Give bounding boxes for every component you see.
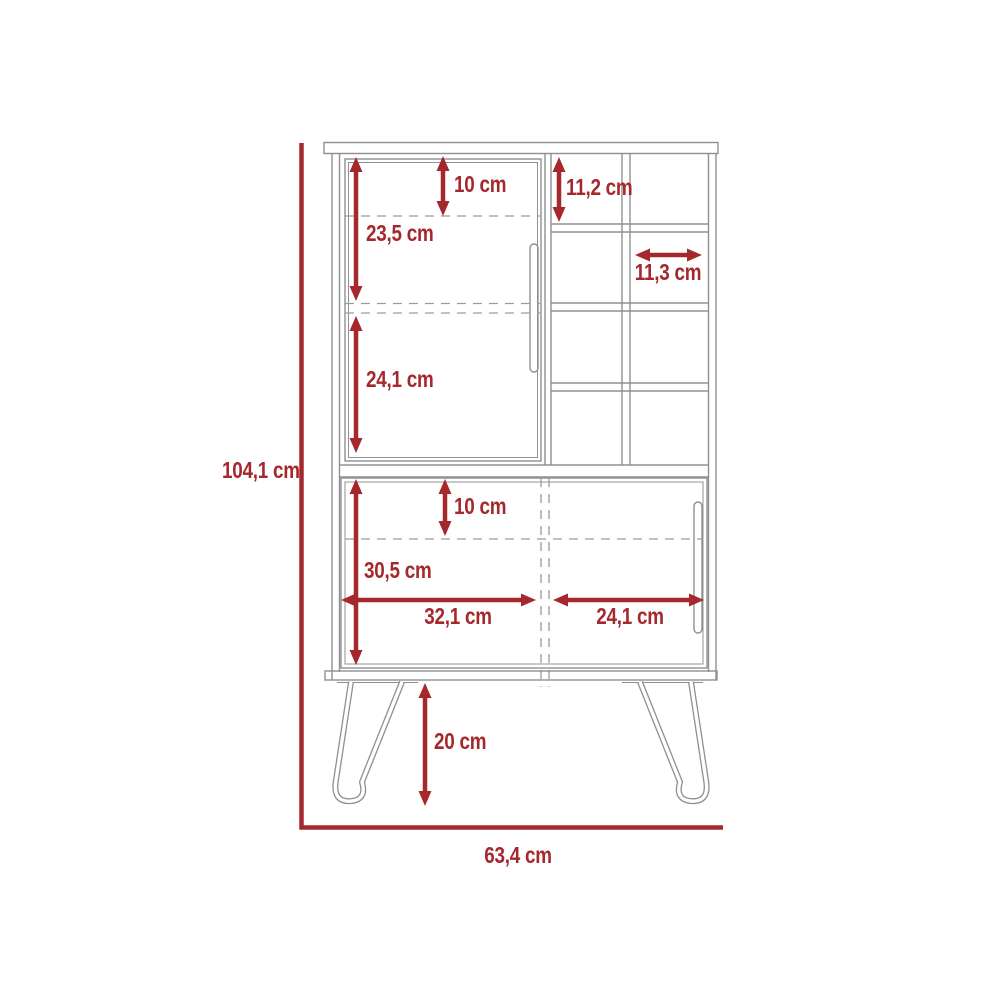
upper-door-handle (530, 244, 538, 372)
dim-label-overall-height: 104,1 cm (222, 459, 317, 482)
dim-label-lower-height: 30,5 cm (364, 559, 446, 582)
dim-arrow-cubby-height (553, 157, 566, 222)
cubby-grid (551, 154, 709, 466)
dim-label-upper-shelf-first: 23,5 cm (366, 222, 448, 245)
dim-arrow-upper-shelf-second (350, 316, 363, 453)
dimension-diagram: 104,1 cm 63,4 cm 10 cm 23,5 cm 24,1 cm 1… (0, 0, 1000, 1000)
dim-arrow-upper-top-offset (437, 156, 450, 216)
dim-arrow-lower-top-offset (439, 479, 452, 536)
dim-label-lower-top-offset: 10 cm (454, 495, 518, 518)
dim-label-leg-height: 20 cm (434, 730, 498, 753)
dim-label-upper-top-offset: 10 cm (454, 173, 518, 196)
dim-label-lower-left-width: 32,1 cm (417, 605, 499, 628)
hairpin-leg-right (640, 682, 707, 801)
lower-door-handle (694, 502, 702, 633)
cabinet-base-board (325, 671, 717, 680)
dim-label-overall-width: 63,4 cm (477, 844, 559, 867)
dim-label-lower-right-width: 24,1 cm (589, 605, 671, 628)
dim-label-cubby-width: 11,3 cm (627, 261, 708, 284)
dim-label-upper-shelf-second: 24,1 cm (366, 368, 448, 391)
dim-label-cubby-height: 11,2 cm (566, 176, 647, 199)
dim-arrow-upper-shelf-first (350, 157, 363, 301)
cabinet-top-board (324, 143, 718, 154)
hairpin-legs (335, 682, 706, 801)
dim-arrow-leg-height (419, 683, 432, 806)
dim-arrow-lower-height (350, 479, 363, 665)
hairpin-leg-left (335, 682, 402, 801)
